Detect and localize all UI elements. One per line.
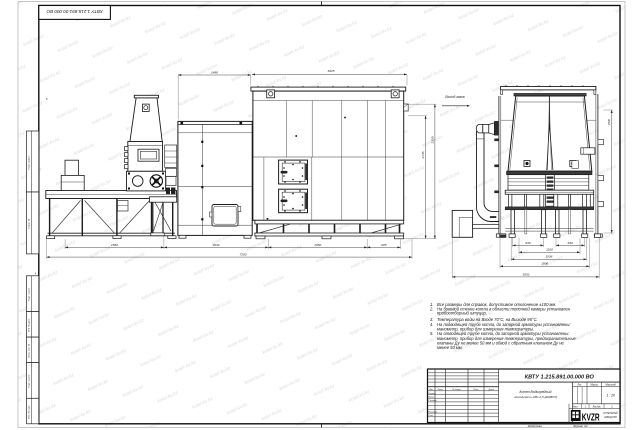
- svg-text:Инв. № подл.: Инв. № подл.: [28, 405, 31, 419]
- svg-text:1486: 1486: [211, 70, 218, 74]
- svg-text:2440: 2440: [607, 118, 611, 126]
- svg-text:2350: 2350: [430, 136, 434, 144]
- svg-text:Листов: Листов: [593, 405, 601, 408]
- svg-text:Лист: Лист: [437, 389, 443, 391]
- svg-text:630: 630: [525, 241, 530, 245]
- svg-text:3025: 3025: [328, 69, 335, 73]
- svg-text:Лист: Лист: [573, 405, 579, 408]
- svg-text:№ докум.: № докум.: [452, 388, 461, 391]
- svg-text:Пров.: Пров.: [428, 397, 434, 399]
- svg-text:Масштаб: Масштаб: [606, 384, 617, 387]
- svg-text:3052: 3052: [523, 272, 530, 276]
- svg-text:«КотАгрет»-КВг-2,5-ДО(ВПУ): «КотАгрет»-КВг-2,5-ДО(ВПУ): [514, 395, 558, 399]
- svg-text:Утв.: Утв.: [428, 415, 433, 417]
- svg-text:Справ. №: Справ. №: [28, 218, 31, 229]
- svg-text:KVZR: KVZR: [582, 412, 600, 424]
- svg-text:7280: 7280: [240, 253, 247, 257]
- svg-text:Н.контр.: Н.контр.: [428, 411, 438, 413]
- svg-text:685: 685: [381, 243, 386, 247]
- svg-text:Формат А2: Формат А2: [573, 424, 588, 428]
- svg-text:1560: 1560: [111, 243, 118, 247]
- svg-text:Подп. и дата: Подп. и дата: [29, 374, 31, 388]
- svg-text:Перв. примен.: Перв. примен.: [29, 155, 31, 170]
- svg-text:Изм.: Изм.: [429, 389, 434, 391]
- svg-text:Лит.: Лит.: [577, 384, 582, 387]
- svg-text:КВТУ 1.215.891.00.000 ВО: КВТУ 1.215.891.00.000 ВО: [525, 375, 595, 381]
- svg-text:1906: 1906: [541, 262, 548, 266]
- svg-text:Масса: Масса: [591, 384, 599, 387]
- svg-text:Взам. инв. №: Взам. инв. №: [28, 343, 31, 357]
- svg-text:5.: 5.: [430, 331, 433, 336]
- svg-text:Инв. № дубл.: Инв. № дубл.: [28, 318, 31, 332]
- svg-text:1 : 20: 1 : 20: [606, 394, 615, 398]
- svg-text:2034: 2034: [212, 243, 220, 247]
- svg-text:менее 50 мм.: менее 50 мм.: [437, 345, 463, 350]
- svg-text:Дата: Дата: [488, 389, 495, 391]
- svg-text:2.: 2.: [429, 306, 433, 311]
- svg-text:Т.контр.: Т.контр.: [428, 400, 437, 402]
- svg-text:ЗАВОД РЗН: ЗАВОД РЗН: [604, 416, 617, 419]
- svg-text:Подп.: Подп.: [473, 388, 479, 391]
- svg-text:1538: 1538: [545, 255, 552, 259]
- svg-text:Выход газов: Выход газов: [445, 95, 464, 99]
- svg-text:1950: 1950: [314, 243, 321, 247]
- svg-text:Котел Водогрейный: Котел Водогрейный: [520, 390, 552, 394]
- svg-text:2135: 2135: [421, 151, 425, 159]
- svg-text:4.: 4.: [430, 322, 433, 327]
- svg-text:630: 630: [568, 241, 573, 245]
- svg-text:КВТУ 1.215.891.00.000 ВО: КВТУ 1.215.891.00.000 ВО: [46, 9, 102, 14]
- svg-text:Разраб.: Разраб.: [428, 393, 436, 395]
- svg-text:1160: 1160: [546, 248, 553, 252]
- svg-text:пробоотборный штуцер.: пробоотборный штуцер.: [437, 311, 487, 316]
- svg-text:Подп. и дата: Подп. и дата: [29, 287, 31, 301]
- svg-text:КОТЕЛЬНЫЙ: КОТЕЛЬНЫЙ: [603, 412, 618, 415]
- svg-text:Копировал: Копировал: [528, 424, 542, 428]
